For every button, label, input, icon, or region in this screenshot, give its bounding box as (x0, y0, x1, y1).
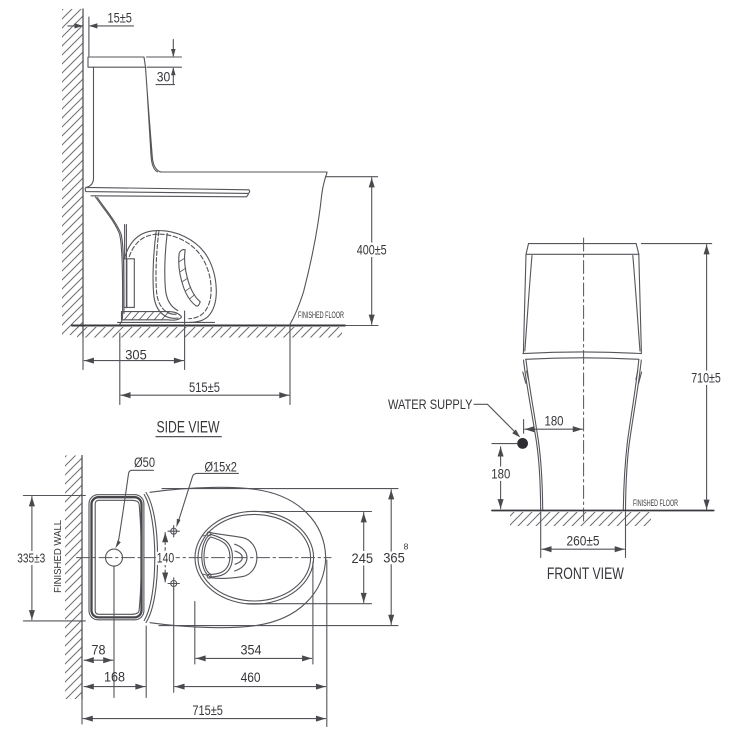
svg-text:180: 180 (491, 466, 510, 482)
svg-text:78: 78 (92, 642, 106, 657)
svg-text:354: 354 (241, 641, 262, 657)
svg-text:Ø15x2: Ø15x2 (205, 459, 237, 474)
svg-text:FINISHED WALL: FINISHED WALL (52, 520, 64, 593)
svg-text:365: 365 (383, 550, 405, 566)
svg-text:245: 245 (352, 550, 374, 566)
svg-text:305: 305 (125, 346, 147, 362)
svg-text:8: 8 (404, 542, 409, 552)
svg-text:Ø50: Ø50 (134, 455, 155, 470)
svg-text:400±5: 400±5 (357, 242, 387, 258)
svg-text:15±5: 15±5 (107, 11, 132, 26)
svg-text:180: 180 (545, 413, 564, 429)
svg-text:30: 30 (157, 69, 171, 84)
svg-text:260±5: 260±5 (567, 533, 600, 549)
svg-text:335±3: 335±3 (17, 550, 45, 565)
svg-text:FINISHED FLOOR: FINISHED FLOOR (298, 310, 344, 320)
svg-text:FINISHED FLOOR: FINISHED FLOOR (633, 498, 678, 508)
svg-text:FRONT VIEW: FRONT VIEW (547, 564, 624, 583)
svg-text:140: 140 (157, 550, 175, 566)
svg-text:715±5: 715±5 (192, 702, 223, 718)
svg-text:WATER SUPPLY: WATER SUPPLY (388, 397, 473, 412)
svg-text:460: 460 (241, 669, 261, 685)
svg-text:SIDE VIEW: SIDE VIEW (157, 418, 220, 436)
svg-text:515±5: 515±5 (189, 379, 220, 395)
svg-text:710±5: 710±5 (691, 369, 721, 385)
svg-text:168: 168 (104, 670, 125, 685)
